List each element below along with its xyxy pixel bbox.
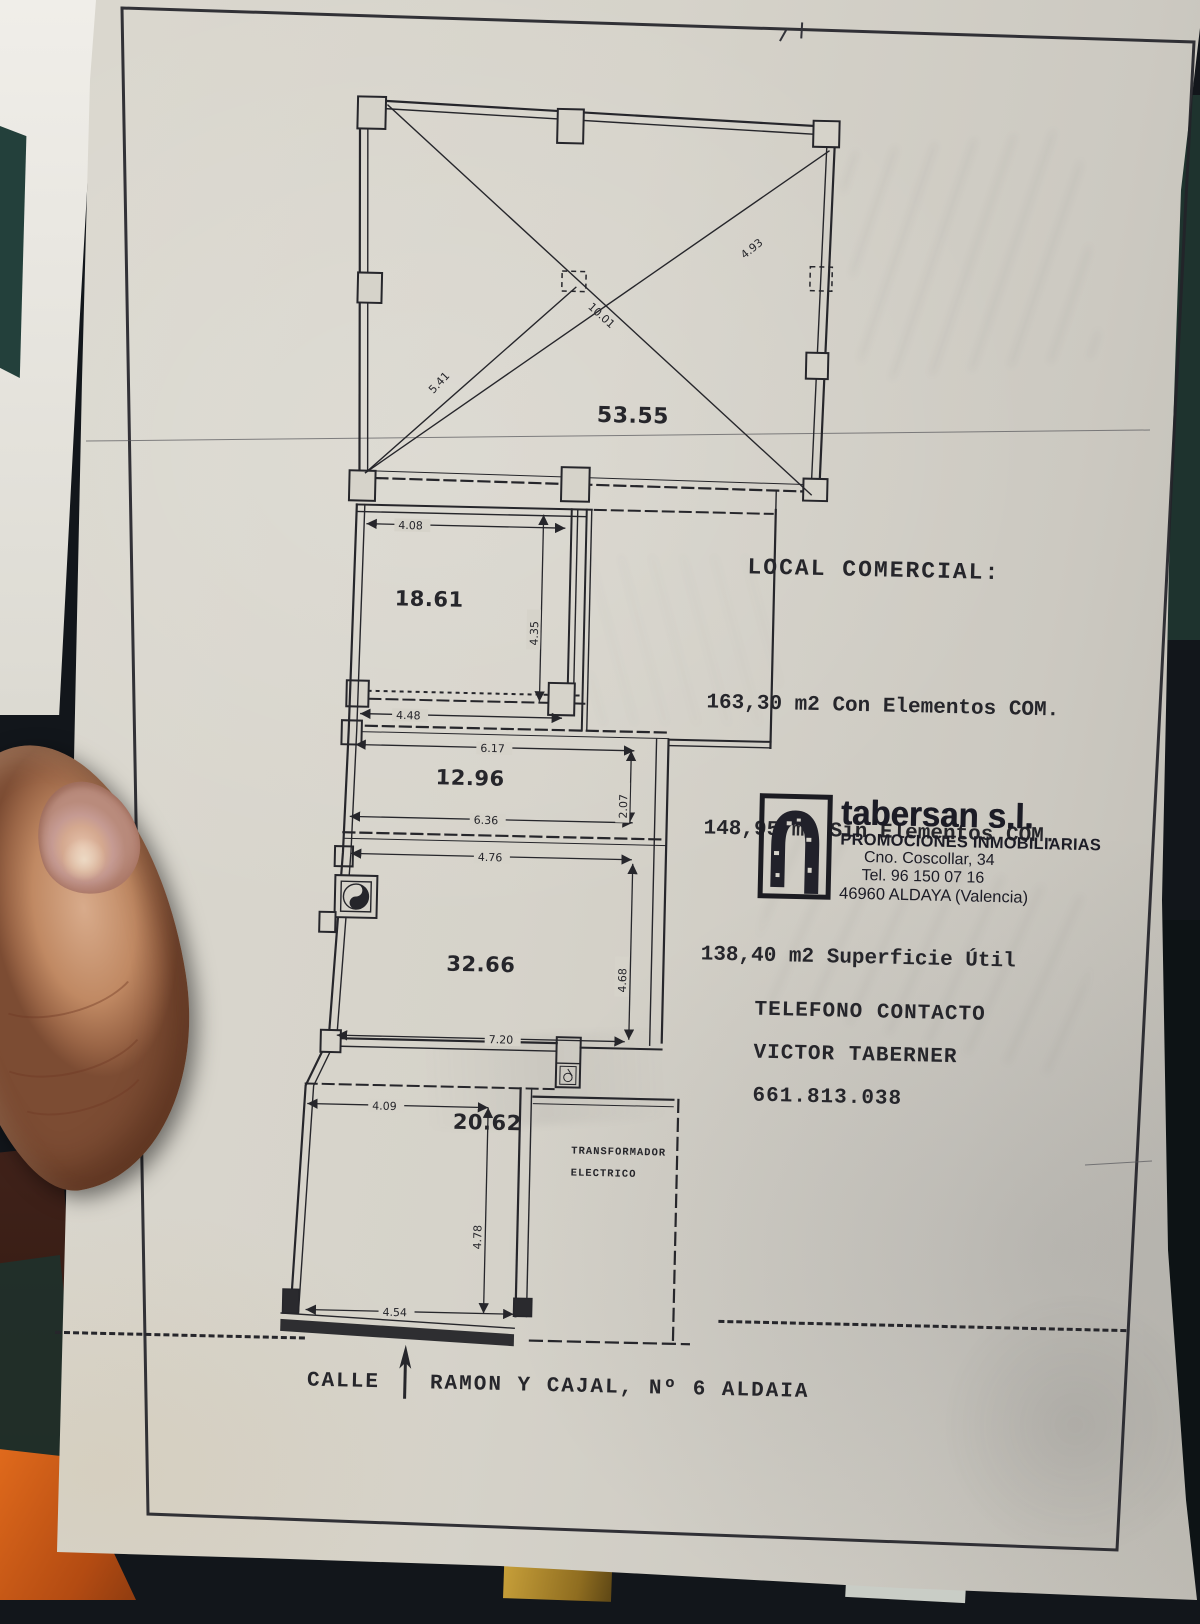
dim-4-48: 4.48 [396,709,421,723]
street-dashed-line-left [55,1331,305,1340]
company-stamp: tabersan s.l. PROMOCIONES INMOBILIARIAS … [757,793,1102,910]
area-line-superficie-util: 138,40 m2 Superficie Útil [700,934,1054,984]
street-name: RAMON Y CAJAL, Nº 6 ALDAIA [430,1372,810,1404]
dim-6-36: 6.36 [474,814,499,828]
stamp-company-name: tabersan s.l. [841,795,1102,836]
toilet-fixture [556,1037,581,1088]
room-53-55-diagonals [365,105,830,495]
contact-name: VICTOR TABERNER [753,1032,985,1080]
dim-4-08: 4.08 [398,519,423,533]
dim-4-78: 4.78 [471,1225,485,1250]
room-label-18-61: 18.61 [394,586,463,612]
pen-tick-mark [779,27,788,41]
diagonal-dim-4-93: 4.93 [738,236,765,261]
room-18-61-walls [346,504,592,730]
dim-4-09: 4.09 [372,1099,397,1113]
room-label-20-62: 20.62 [453,1110,522,1136]
dim-4-76: 4.76 [478,851,503,865]
diagonal-dim-10-01: 10.01 [585,300,617,331]
dim-4-68: 4.68 [616,968,630,993]
street-prefix: CALLE [307,1370,381,1395]
dim-7-20: 7.20 [489,1033,514,1047]
dim-4-54: 4.54 [382,1306,407,1320]
spiral-column-symbol [319,875,377,933]
contact-phone: 661.813.038 [752,1075,984,1123]
pen-tick-mark [800,22,803,38]
transformer-label-line1: TRANSFORMADOR [571,1145,666,1159]
diagonal-dim-5-41: 5.41 [426,369,452,396]
street-caption: CALLE RAMON Y CAJAL, Nº 6 ALDAIA [307,1343,811,1404]
printed-content-layer: 5.41 10.01 4.93 53.55 4.08 4.35 18.61 [0,0,1200,1624]
dim-4-35: 4.35 [528,621,542,646]
room-label-32-66: 32.66 [446,952,515,978]
transformer-room [528,1097,694,1345]
transformer-label-line2: ELECTRICO [571,1167,637,1180]
room-label-12-96: 12.96 [435,765,504,791]
stamp-arch-logo-icon [757,793,833,901]
north-arrow-icon [394,1345,417,1401]
area-line-con-elementos: 163,30 m2 Con Elementos COM. [706,682,1060,732]
room-label-53-55: 53.55 [597,403,670,430]
contact-label: TELEFONO CONTACTO [754,989,986,1037]
dim-6-17: 6.17 [480,742,505,756]
contact-block: TELEFONO CONTACTO VICTOR TABERNER 661.81… [752,989,986,1123]
dim-2-07: 2.07 [617,794,631,819]
